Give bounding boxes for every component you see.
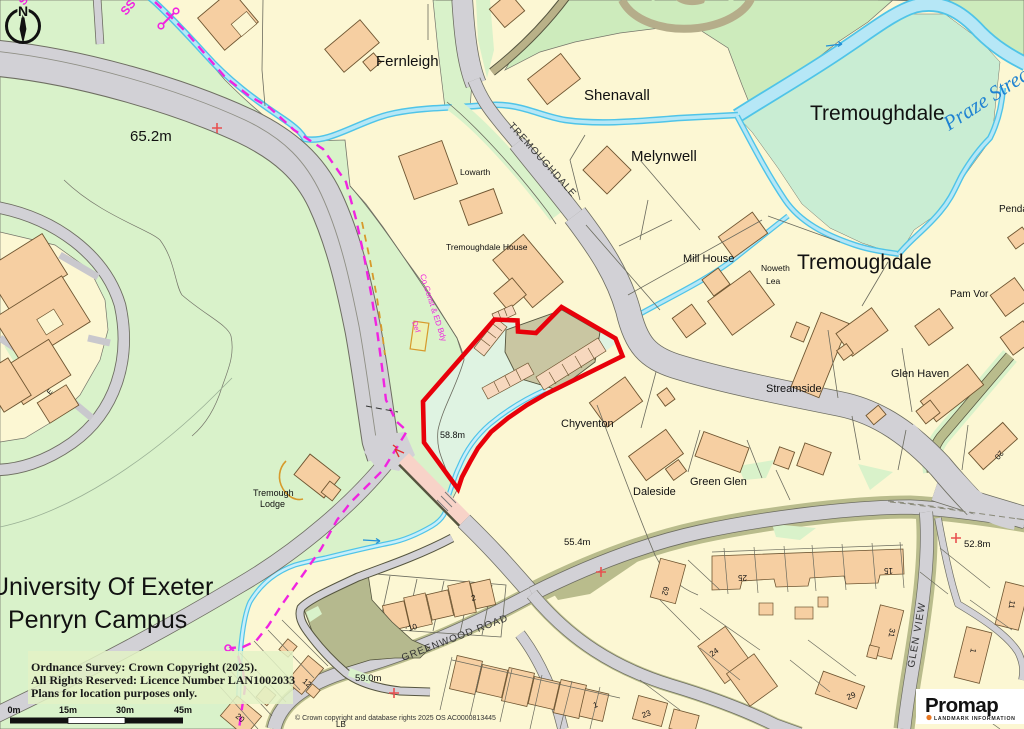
svg-text:25: 25	[738, 573, 747, 582]
svg-text:LANDMARK INFORMATION: LANDMARK INFORMATION	[934, 716, 1016, 722]
svg-text:Tremoughdale: Tremoughdale	[810, 102, 945, 125]
svg-text:Melynwell: Melynwell	[631, 148, 697, 165]
svg-text:Tremoughdale: Tremoughdale	[797, 251, 932, 274]
svg-text:45m: 45m	[174, 705, 192, 715]
svg-text:Tremoughdale House: Tremoughdale House	[446, 242, 528, 252]
svg-text:58.8m: 58.8m	[440, 430, 465, 440]
svg-text:University Of Exeter: University Of Exeter	[0, 573, 213, 601]
svg-text:Noweth: Noweth	[761, 263, 790, 273]
svg-text:30m: 30m	[116, 705, 134, 715]
svg-text:Glen Haven: Glen Haven	[891, 368, 949, 380]
svg-text:Fernleigh: Fernleigh	[376, 53, 439, 70]
svg-text:Streamside: Streamside	[766, 383, 822, 395]
svg-text:© Crown copyright and database: © Crown copyright and database rights 20…	[295, 714, 496, 722]
svg-text:Lea: Lea	[766, 276, 780, 286]
svg-text:15m: 15m	[59, 705, 77, 715]
svg-text:Tremough: Tremough	[253, 488, 294, 498]
svg-text:Lowarth: Lowarth	[460, 167, 491, 177]
svg-text:65.2m: 65.2m	[130, 128, 172, 145]
svg-text:Pam Vor: Pam Vor	[950, 289, 989, 300]
svg-text:N: N	[18, 3, 28, 19]
svg-text:Daleside: Daleside	[633, 486, 676, 498]
svg-text:Chyventon: Chyventon	[561, 418, 614, 430]
svg-text:Promap: Promap	[925, 694, 998, 717]
svg-text:15: 15	[884, 566, 893, 575]
svg-text:59.0m: 59.0m	[355, 673, 381, 684]
svg-text:0m: 0m	[7, 705, 20, 715]
svg-text:Lodge: Lodge	[260, 499, 285, 509]
svg-text:52.8m: 52.8m	[964, 539, 990, 550]
svg-text:Penryn Campus: Penryn Campus	[8, 606, 187, 634]
svg-text:Green Glen: Green Glen	[690, 476, 747, 488]
svg-text:Mill House: Mill House	[683, 253, 734, 265]
svg-text:Plans for location purposes on: Plans for location purposes only.	[31, 686, 197, 700]
svg-text:Ordnance Survey: Crown Copyrig: Ordnance Survey: Crown Copyright (2025).	[31, 660, 257, 674]
svg-text:Shenavall: Shenavall	[584, 87, 650, 104]
svg-text:Pendale: Pendale	[999, 204, 1024, 215]
svg-text:All Rights Reserved: Licence N: All Rights Reserved: Licence Number LAN1…	[31, 673, 295, 687]
svg-text:55.4m: 55.4m	[564, 537, 590, 548]
